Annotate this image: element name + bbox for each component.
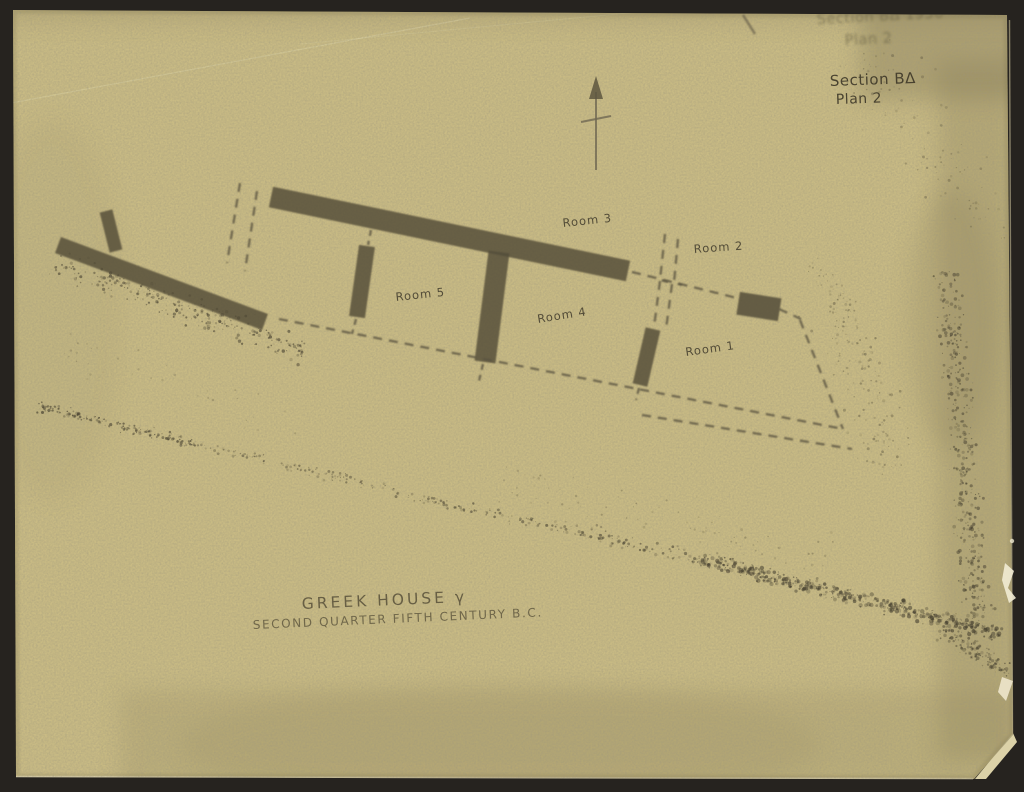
stipple-dot xyxy=(917,614,918,615)
stipple-dot xyxy=(281,462,283,464)
stipple-dot xyxy=(345,473,346,474)
stipple-dot xyxy=(880,606,883,609)
stipple-dot xyxy=(955,364,957,366)
stipple-dot xyxy=(913,615,917,619)
stipple-dot xyxy=(120,432,121,433)
stipple-dot xyxy=(69,266,71,268)
stipple-dot xyxy=(238,340,241,343)
stipple-dot xyxy=(918,609,920,611)
stipple-dot xyxy=(985,627,989,631)
stipple-dot xyxy=(686,554,687,555)
stipple-dot xyxy=(842,593,844,595)
stipple-dot xyxy=(839,355,841,357)
stipple-dot xyxy=(253,334,255,336)
stipple-dot xyxy=(954,338,956,340)
stipple-dot xyxy=(985,655,987,657)
stipple-dot xyxy=(957,630,959,632)
stipple-dot xyxy=(888,89,890,91)
stipple-dot xyxy=(913,610,916,613)
stipple-dot xyxy=(599,540,601,542)
stipple-dot xyxy=(956,344,958,346)
stipple-dot xyxy=(845,333,847,335)
stipple-dot xyxy=(640,543,642,545)
stipple-dot xyxy=(332,480,333,481)
stipple-dot xyxy=(612,538,613,539)
stipple-dot xyxy=(296,348,297,349)
stipple-dot xyxy=(821,594,822,595)
stipple-dot xyxy=(949,618,951,620)
stipple-dot xyxy=(955,613,956,614)
stipple-dot xyxy=(950,323,951,324)
stipple-dot xyxy=(955,218,956,219)
stipple-dot xyxy=(267,346,269,348)
stipple-dot xyxy=(875,440,877,442)
stipple-dot xyxy=(959,483,961,485)
stipple-dot xyxy=(71,267,73,269)
stipple-dot xyxy=(173,313,176,316)
stipple-dot xyxy=(924,148,925,149)
stipple-dot xyxy=(963,529,964,530)
paper-grain xyxy=(13,10,1013,779)
stipple-dot xyxy=(241,343,243,345)
stipple-dot xyxy=(839,320,840,321)
stipple-dot xyxy=(70,407,71,408)
stipple-dot xyxy=(217,445,219,447)
stipple-dot xyxy=(949,426,953,430)
stipple-dot xyxy=(171,433,172,434)
stipple-dot xyxy=(767,578,771,582)
stipple-dot xyxy=(161,296,164,299)
stipple-dot xyxy=(971,438,972,439)
stipple-dot xyxy=(994,192,996,194)
stipple-dot xyxy=(102,372,104,374)
stipple-dot xyxy=(916,115,918,117)
stipple-dot xyxy=(72,266,74,268)
stipple-dot xyxy=(600,526,602,528)
stipple-dot xyxy=(953,416,956,419)
stipple-dot xyxy=(274,351,276,353)
stipple-dot xyxy=(752,566,754,568)
stipple-dot xyxy=(957,454,961,458)
stipple-dot xyxy=(955,386,957,388)
stipple-dot xyxy=(962,511,965,514)
stipple-dot xyxy=(846,301,847,302)
stipple-dot xyxy=(201,321,203,323)
stipple-dot xyxy=(861,377,862,378)
stipple-dot xyxy=(1006,675,1008,677)
stipple-dot xyxy=(950,434,952,436)
stipple-dot xyxy=(739,568,741,570)
stipple-dot xyxy=(872,461,875,464)
stipple-dot xyxy=(974,653,976,655)
stipple-dot xyxy=(959,634,962,637)
stipple-dot xyxy=(233,451,235,453)
stipple-dot xyxy=(900,464,902,466)
stipple-dot xyxy=(111,284,113,286)
stipple-dot xyxy=(945,629,948,632)
stipple-dot xyxy=(956,550,960,554)
stipple-dot xyxy=(907,427,909,429)
stipple-dot xyxy=(988,208,990,210)
stipple-dot xyxy=(392,488,395,491)
stipple-dot xyxy=(732,565,733,566)
stipple-dot xyxy=(301,356,302,357)
stipple-dot xyxy=(293,345,296,348)
stipple-dot xyxy=(838,360,840,362)
stipple-dot xyxy=(665,499,667,501)
stipple-dot xyxy=(691,561,692,562)
stipple-dot xyxy=(959,353,960,354)
stipple-dot xyxy=(191,444,192,445)
stipple-dot xyxy=(845,595,847,597)
stipple-dot xyxy=(924,196,927,199)
stipple-dot xyxy=(149,293,151,295)
stipple-dot xyxy=(334,475,336,477)
stipple-dot xyxy=(818,285,819,286)
stipple-dot xyxy=(555,526,557,528)
stipple-dot xyxy=(955,343,956,344)
stipple-dot xyxy=(994,626,998,630)
stipple-dot xyxy=(547,502,549,504)
stipple-dot xyxy=(957,371,959,373)
stipple-dot xyxy=(969,408,970,409)
stipple-dot xyxy=(235,450,236,451)
stipple-dot xyxy=(166,365,167,366)
stipple-dot xyxy=(720,567,721,568)
stipple-dot xyxy=(970,646,972,648)
stipple-dot xyxy=(677,545,679,547)
stipple-dot xyxy=(962,577,966,581)
stipple-dot xyxy=(1008,673,1009,674)
stipple-dot xyxy=(971,451,973,453)
stipple-dot xyxy=(937,615,941,619)
stipple-dot xyxy=(156,293,159,296)
stipple-dot xyxy=(942,307,944,309)
stipple-dot xyxy=(785,562,787,564)
stipple-dot xyxy=(968,567,969,568)
stipple-dot xyxy=(940,124,943,127)
stipple-dot xyxy=(842,321,844,323)
stipple-dot xyxy=(231,324,233,326)
stipple-dot xyxy=(237,334,240,337)
stipple-dot xyxy=(140,429,141,430)
stipple-dot xyxy=(952,614,956,618)
stipple-dot xyxy=(851,343,853,345)
stipple-dot xyxy=(939,156,941,158)
stipple-dot xyxy=(133,432,135,434)
stipple-dot xyxy=(145,430,148,433)
stipple-dot xyxy=(191,439,192,440)
stipple-dot xyxy=(127,287,129,289)
stipple-dot xyxy=(958,305,960,307)
stipple-dot xyxy=(847,340,848,341)
stipple-dot xyxy=(597,537,598,538)
stipple-dot xyxy=(574,533,576,535)
stipple-dot xyxy=(138,288,140,290)
stipple-dot xyxy=(887,607,888,608)
stipple-dot xyxy=(833,302,836,305)
stipple-dot xyxy=(956,167,957,168)
stipple-dot xyxy=(246,456,249,459)
stipple-dot xyxy=(727,546,728,547)
stipple-dot xyxy=(453,506,455,508)
stipple-dot xyxy=(730,568,734,572)
stipple-dot xyxy=(729,567,731,569)
stipple-dot xyxy=(952,409,955,412)
stipple-dot xyxy=(563,525,566,528)
stipple-dot xyxy=(956,273,960,277)
stipple-dot xyxy=(956,423,958,425)
stipple-dot xyxy=(111,290,112,291)
stipple-dot xyxy=(901,604,903,606)
stipple-dot xyxy=(984,605,986,607)
stipple-dot xyxy=(972,580,974,582)
stipple-dot xyxy=(92,283,93,284)
stipple-dot xyxy=(812,267,814,269)
stipple-dot xyxy=(856,342,859,345)
stipple-dot xyxy=(832,541,834,543)
stipple-dot xyxy=(837,299,838,300)
stipple-dot xyxy=(838,297,839,298)
stipple-dot xyxy=(901,606,903,608)
stipple-dot xyxy=(979,496,981,498)
stipple-dot xyxy=(982,581,984,583)
stipple-dot xyxy=(159,311,160,312)
stipple-dot xyxy=(565,528,568,531)
stipple-dot xyxy=(651,548,653,550)
stipple-dot xyxy=(617,535,619,537)
stipple-dot xyxy=(838,327,839,328)
stipple-dot xyxy=(126,298,128,300)
stipple-dot xyxy=(955,405,956,406)
stipple-dot xyxy=(817,541,819,543)
stipple-dot xyxy=(179,439,180,440)
stipple-dot xyxy=(961,144,962,145)
stipple-dot xyxy=(816,281,817,282)
stipple-dot xyxy=(132,373,133,374)
stipple-dot xyxy=(645,546,648,549)
stipple-dot xyxy=(960,622,961,623)
stipple-dot xyxy=(934,614,938,618)
stipple-dot xyxy=(954,323,956,325)
stipple-dot xyxy=(971,643,973,645)
stipple-dot xyxy=(688,559,690,561)
stipple-dot xyxy=(76,352,78,354)
stipple-dot xyxy=(901,614,905,618)
stipple-dot xyxy=(373,486,375,488)
stipple-dot xyxy=(271,331,274,334)
stipple-dot xyxy=(885,433,887,435)
stipple-dot xyxy=(174,395,175,396)
stipple-dot xyxy=(942,353,943,354)
stipple-dot xyxy=(963,539,966,542)
stipple-dot xyxy=(761,553,763,555)
stipple-dot xyxy=(954,448,957,451)
stipple-dot xyxy=(804,586,808,590)
stipple-dot xyxy=(732,567,733,568)
stipple-dot xyxy=(999,670,1000,671)
stipple-dot xyxy=(316,467,318,469)
stipple-dot xyxy=(980,651,983,654)
stipple-dot xyxy=(946,623,948,625)
stipple-dot xyxy=(958,362,961,365)
stipple-dot xyxy=(971,656,973,658)
stipple-dot xyxy=(169,437,171,439)
stipple-dot xyxy=(874,435,876,437)
stipple-dot xyxy=(833,586,837,590)
stipple-dot xyxy=(166,305,167,306)
stipple-dot xyxy=(968,512,972,516)
stipple-dot xyxy=(289,466,292,469)
stipple-dot xyxy=(77,342,79,344)
stipple-dot xyxy=(970,504,973,507)
stipple-dot xyxy=(956,426,957,427)
stipple-dot xyxy=(254,456,255,457)
stipple-dot xyxy=(327,470,330,473)
stipple-dot xyxy=(987,663,989,665)
stipple-dot xyxy=(932,610,933,611)
stipple-dot xyxy=(705,530,706,531)
stipple-dot xyxy=(88,363,89,364)
stipple-dot xyxy=(971,629,975,633)
stipple-dot xyxy=(537,524,538,525)
stipple-dot xyxy=(740,575,741,576)
stipple-dot xyxy=(839,591,842,594)
stipple-dot xyxy=(252,456,254,458)
stipple-dot xyxy=(908,444,909,445)
stipple-dot xyxy=(633,506,634,507)
stipple-dot xyxy=(548,488,549,489)
stipple-dot xyxy=(947,375,950,378)
stipple-dot xyxy=(967,640,969,642)
stipple-dot xyxy=(973,607,976,610)
stipple-dot xyxy=(904,123,905,124)
stipple-dot xyxy=(533,485,534,486)
stipple-dot xyxy=(962,533,964,535)
stipple-dot xyxy=(902,600,906,604)
stipple-dot xyxy=(971,463,973,465)
stipple-dot xyxy=(808,553,810,555)
stipple-dot xyxy=(277,338,280,341)
stipple-dot xyxy=(70,262,73,265)
stipple-dot xyxy=(276,352,277,353)
stipple-dot xyxy=(965,557,967,559)
stipple-dot xyxy=(561,503,563,505)
stipple-dot xyxy=(970,449,971,450)
stipple-dot xyxy=(898,448,899,449)
stipple-dot xyxy=(188,305,190,307)
stipple-dot xyxy=(847,373,849,375)
stipple-dot xyxy=(760,566,764,570)
stipple-dot xyxy=(945,320,948,323)
stipple-dot xyxy=(135,299,137,301)
stipple-dot xyxy=(636,532,637,533)
stipple-dot xyxy=(153,427,154,428)
stipple-dot xyxy=(176,311,177,312)
stipple-dot xyxy=(755,573,756,574)
stipple-dot xyxy=(945,334,948,337)
stipple-dot xyxy=(972,603,975,606)
stipple-dot xyxy=(105,425,106,426)
stipple-dot xyxy=(969,433,970,434)
stipple-dot xyxy=(991,632,995,636)
stipple-dot xyxy=(501,514,504,517)
stipple-dot xyxy=(339,474,342,477)
stipple-dot xyxy=(625,546,626,547)
stipple-dot xyxy=(214,326,216,328)
stipple-dot xyxy=(795,554,796,555)
stipple-dot xyxy=(841,284,843,286)
stipple-dot xyxy=(473,509,475,511)
stipple-dot xyxy=(169,431,171,433)
stipple-dot xyxy=(934,166,936,168)
stipple-dot xyxy=(961,639,962,640)
stipple-dot xyxy=(955,390,959,394)
stipple-dot xyxy=(890,609,893,612)
stipple-dot xyxy=(975,584,977,586)
stipple-dot xyxy=(962,519,963,520)
stipple-dot xyxy=(817,258,818,259)
stipple-dot xyxy=(68,356,70,358)
stipple-dot xyxy=(617,538,618,539)
stipple-dot xyxy=(645,523,647,525)
stipple-dot xyxy=(173,316,175,318)
stipple-dot xyxy=(254,344,255,345)
stipple-dot xyxy=(755,567,758,570)
stipple-dot xyxy=(345,474,348,477)
stipple-dot xyxy=(957,393,960,396)
stipple-dot xyxy=(671,545,674,548)
stipple-dot xyxy=(877,395,879,397)
stipple-dot xyxy=(96,283,99,286)
stipple-dot xyxy=(208,325,211,328)
stipple-dot xyxy=(965,493,967,495)
stipple-dot xyxy=(557,530,558,531)
stipple-dot xyxy=(931,610,932,611)
stipple-dot xyxy=(840,65,842,67)
stipple-dot xyxy=(947,341,951,345)
stipple-dot xyxy=(970,492,971,493)
stipple-dot xyxy=(843,326,844,327)
stipple-dot xyxy=(678,511,680,513)
stipple-dot xyxy=(826,274,827,275)
stipple-dot xyxy=(882,399,885,402)
stipple-dot xyxy=(516,487,517,488)
stipple-dot xyxy=(972,593,973,594)
stipple-dot xyxy=(213,449,216,452)
stipple-dot xyxy=(989,657,992,660)
stipple-dot xyxy=(883,52,885,54)
stipple-dot xyxy=(511,515,512,516)
stipple-dot xyxy=(900,99,903,102)
stipple-dot xyxy=(151,437,152,438)
stipple-dot xyxy=(997,208,1000,211)
stipple-dot xyxy=(945,328,947,330)
stipple-dot xyxy=(596,533,597,534)
stipple-dot xyxy=(278,349,280,351)
stipple-dot xyxy=(972,407,973,408)
stipple-dot xyxy=(233,328,234,329)
stipple-dot xyxy=(210,447,212,449)
stipple-dot xyxy=(730,558,733,561)
stipple-dot xyxy=(963,433,966,436)
stipple-dot xyxy=(929,619,933,623)
stipple-dot xyxy=(545,524,548,527)
stipple-dot xyxy=(339,480,341,482)
stipple-dot xyxy=(761,570,764,573)
stipple-dot xyxy=(920,614,921,615)
stipple-dot xyxy=(981,577,982,578)
